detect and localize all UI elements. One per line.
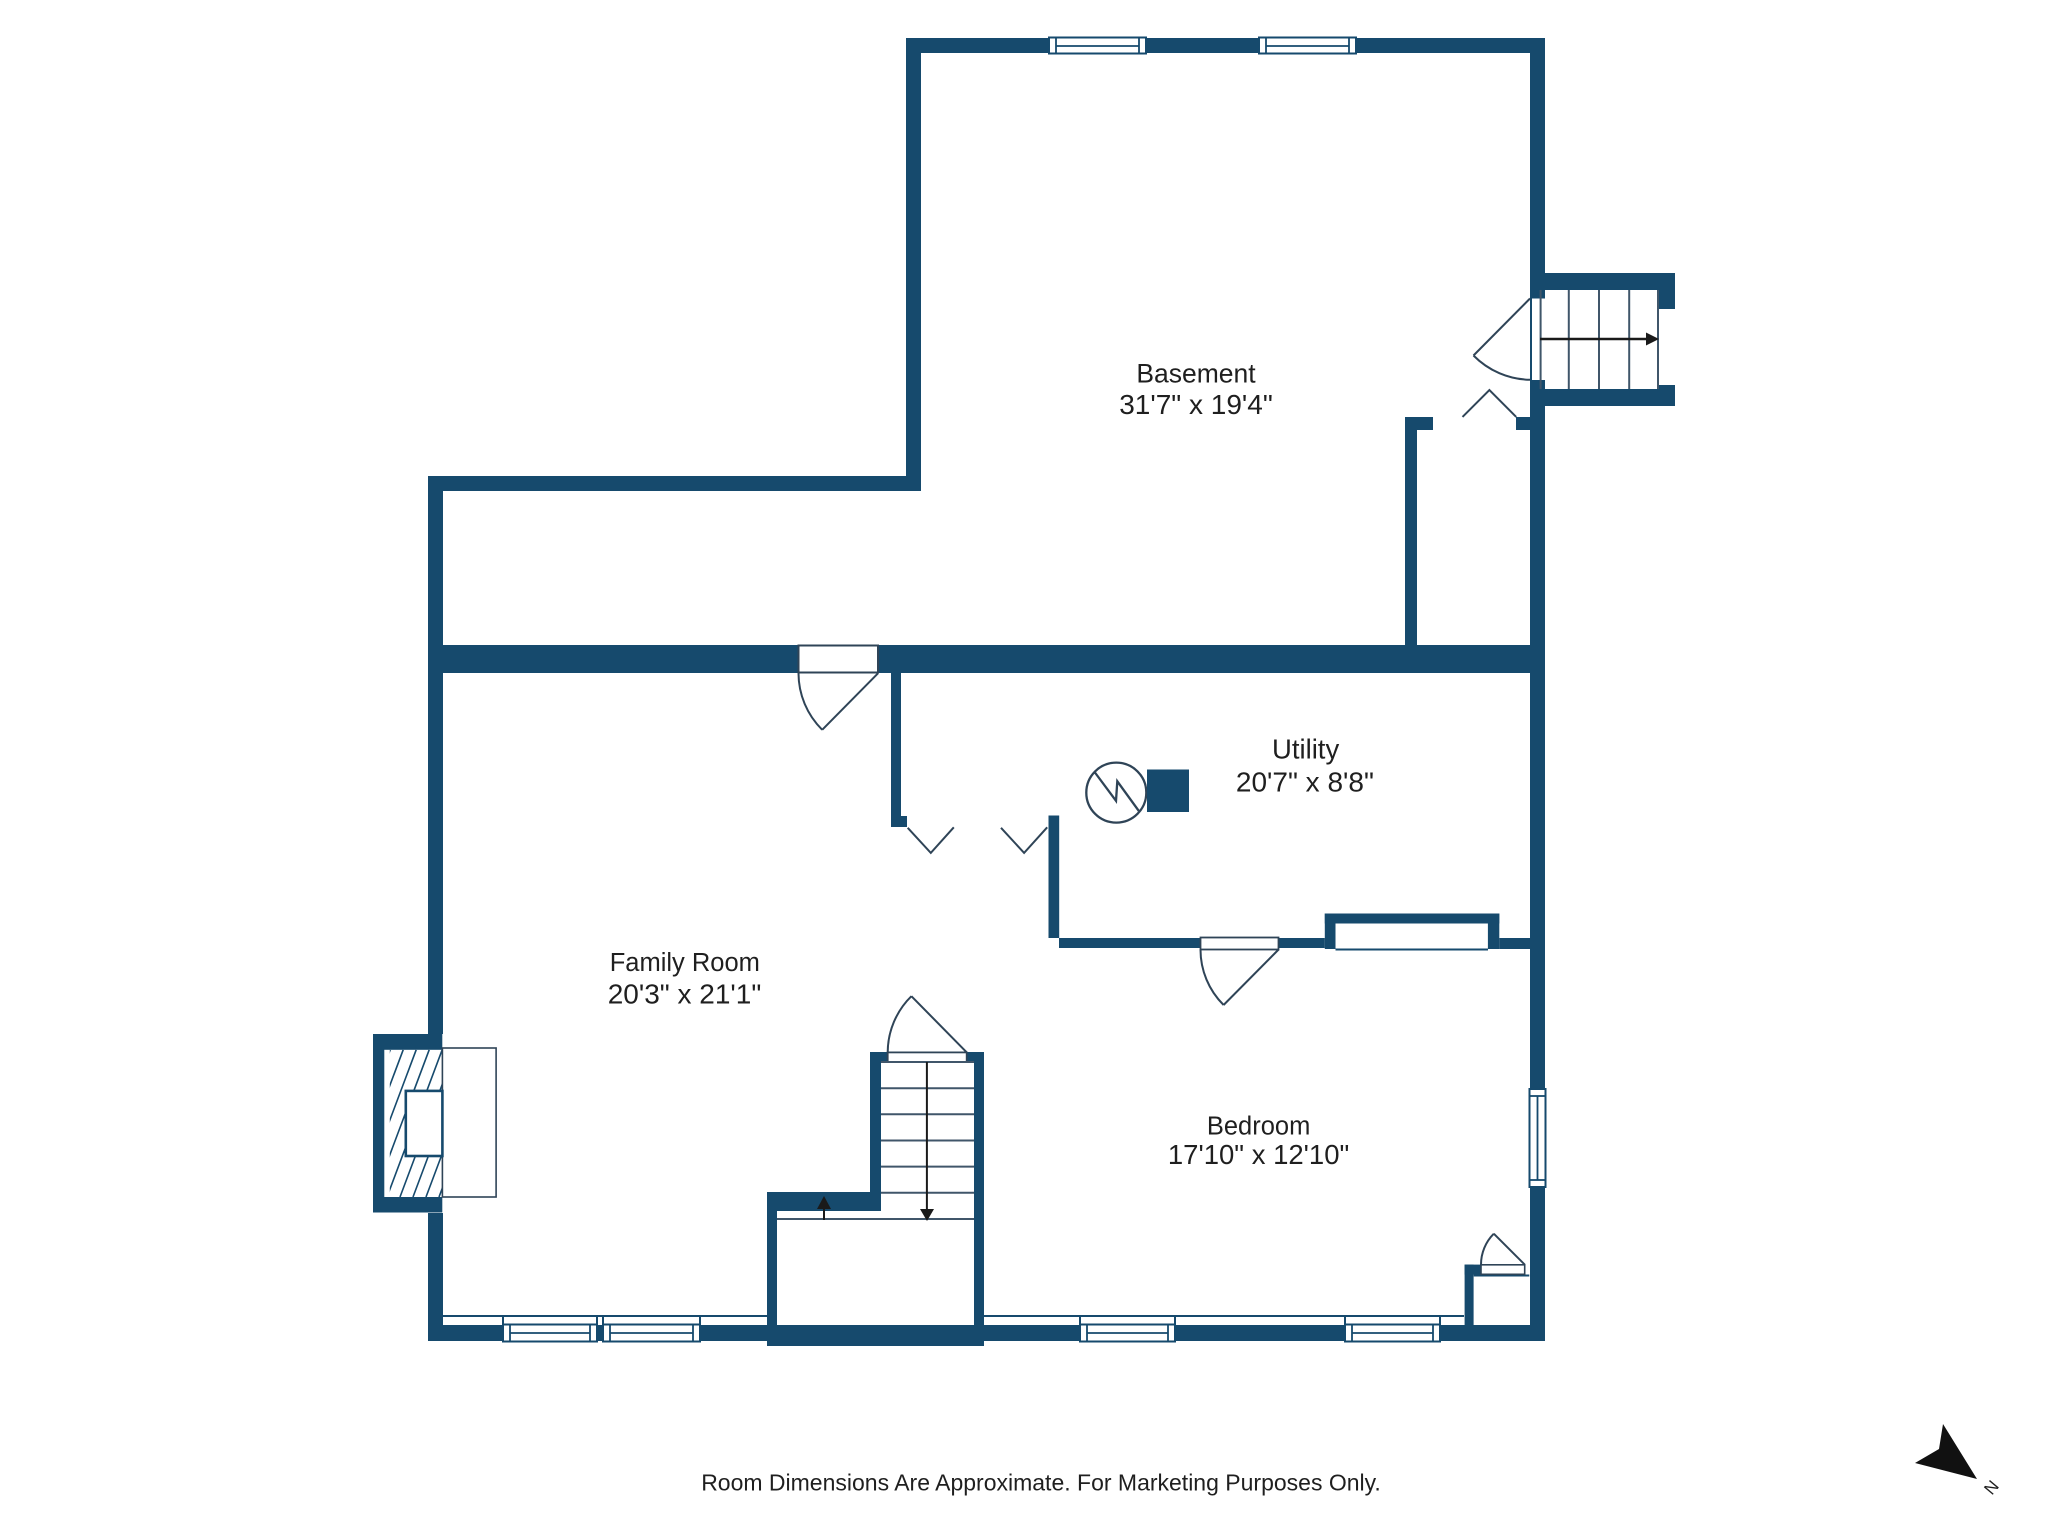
svg-text:31'7" x 19'4": 31'7" x 19'4" bbox=[1119, 389, 1273, 420]
svg-text:Bedroom: Bedroom bbox=[1207, 1113, 1310, 1141]
svg-text:Family Room: Family Room bbox=[610, 949, 760, 977]
svg-text:Utility: Utility bbox=[1272, 734, 1339, 765]
svg-text:Basement: Basement bbox=[1136, 359, 1256, 389]
svg-text:17'10" x 12'10": 17'10" x 12'10" bbox=[1168, 1139, 1349, 1170]
svg-text:N: N bbox=[1980, 1477, 2002, 1499]
svg-text:20'7" x 8'8": 20'7" x 8'8" bbox=[1236, 767, 1374, 798]
svg-text:20'3" x 21'1": 20'3" x 21'1" bbox=[608, 979, 762, 1010]
svg-text:Room Dimensions Are Approximat: Room Dimensions Are Approximate. For Mar… bbox=[701, 1470, 1381, 1496]
